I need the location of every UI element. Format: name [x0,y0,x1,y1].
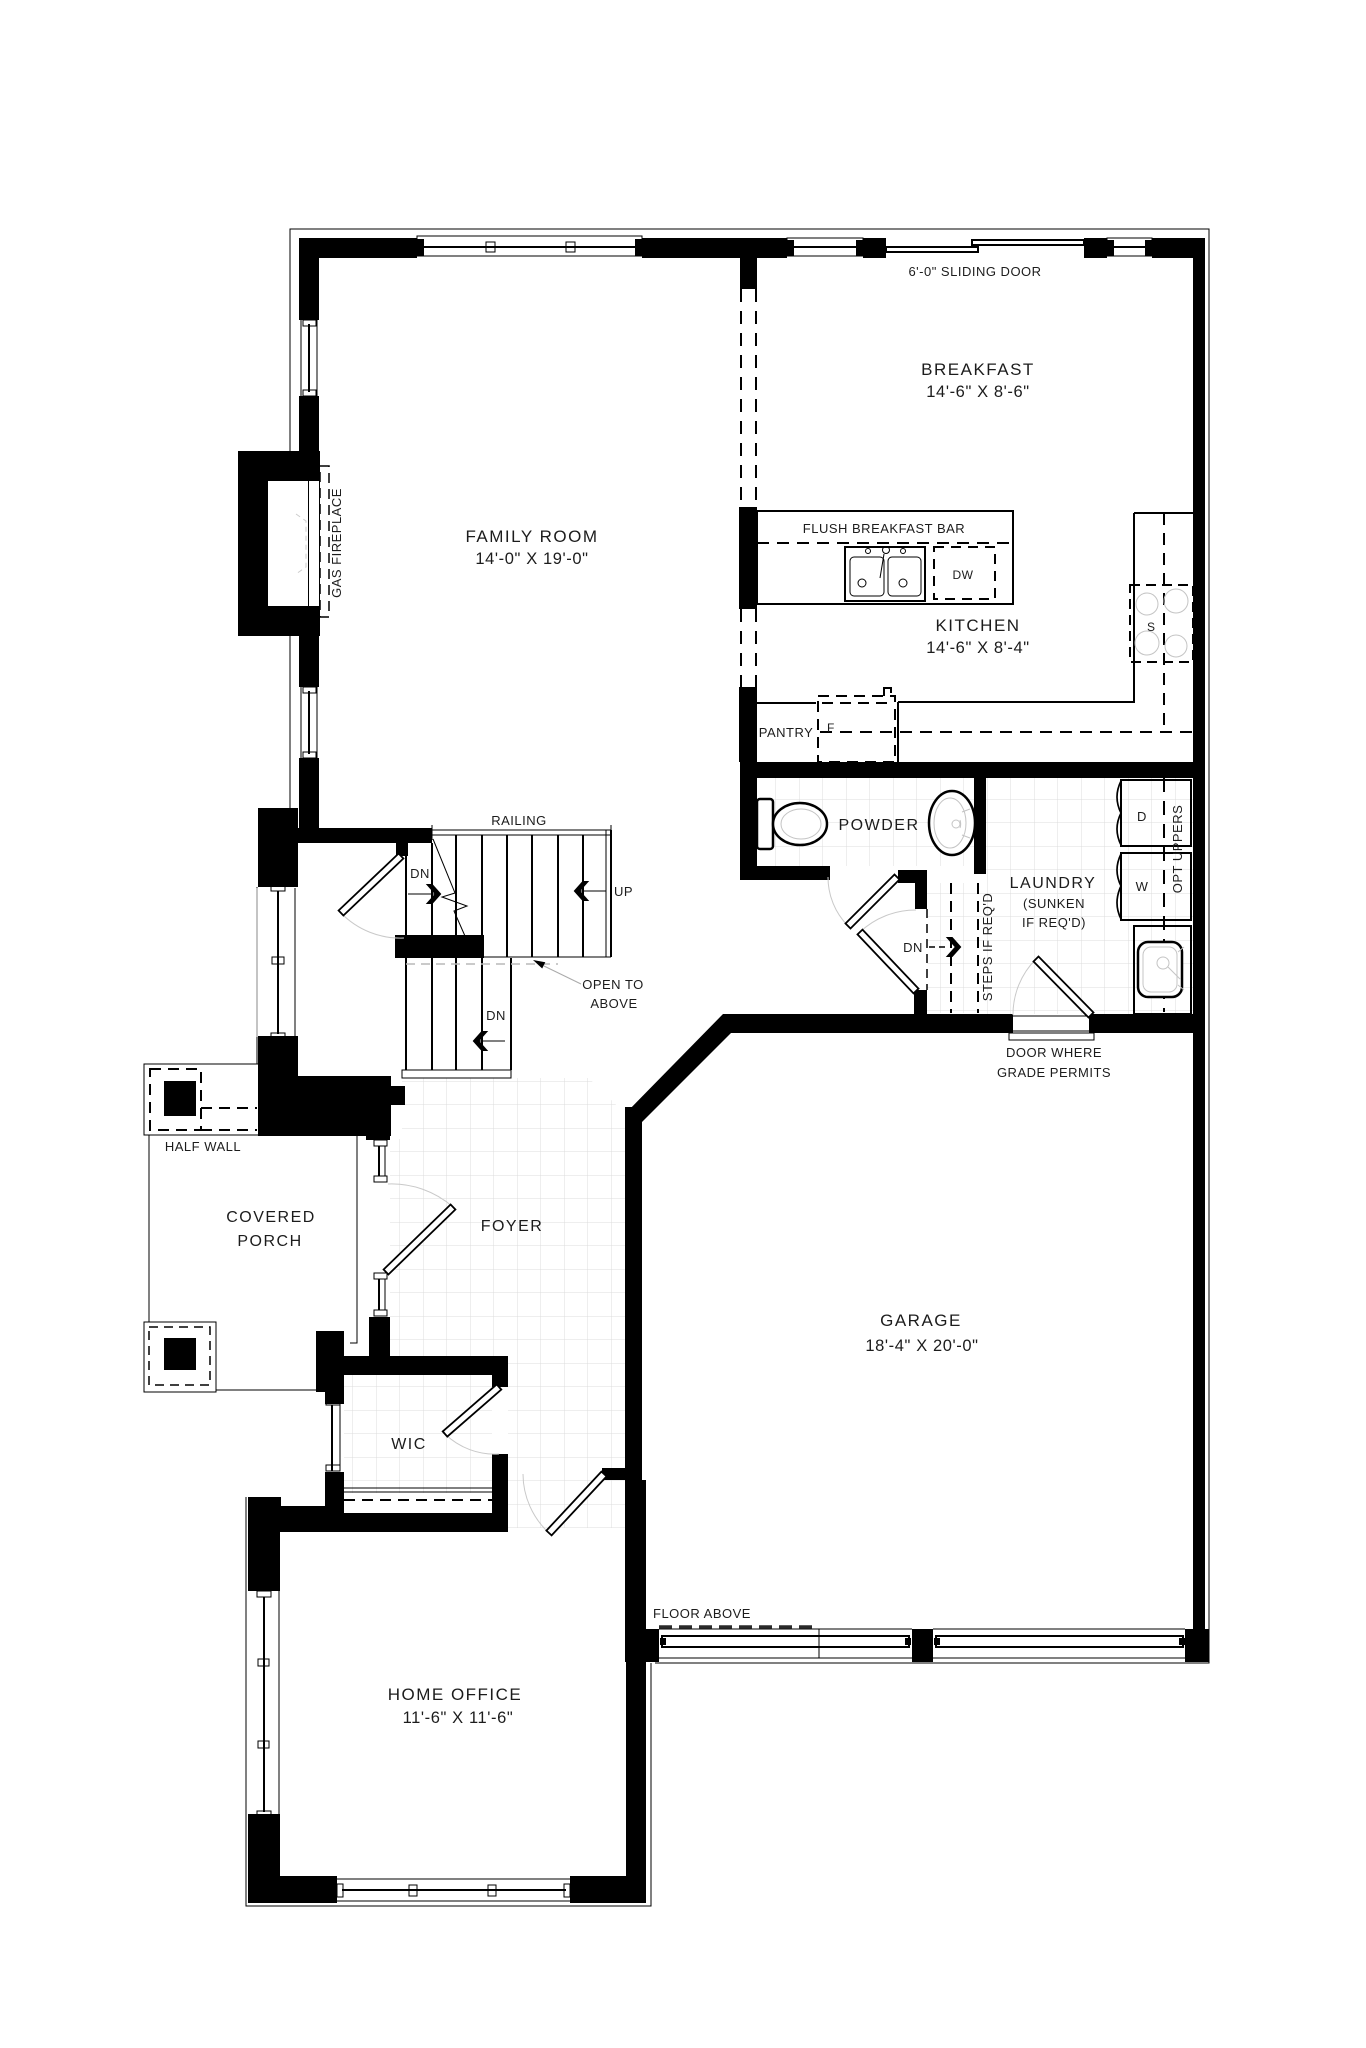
svg-text:DN: DN [903,940,923,955]
svg-text:14'-6" X 8'-6": 14'-6" X 8'-6" [926,383,1029,401]
svg-text:ABOVE: ABOVE [590,996,637,1011]
svg-text:11'-6" X 11'-6": 11'-6" X 11'-6" [403,1709,514,1727]
svg-text:WIC: WIC [391,1436,427,1453]
svg-text:S: S [1147,620,1156,634]
svg-text:GRADE PERMITS: GRADE PERMITS [997,1065,1111,1080]
svg-text:FAMILY ROOM: FAMILY ROOM [465,527,598,546]
svg-text:FLOOR ABOVE: FLOOR ABOVE [653,1606,751,1621]
svg-text:KITCHEN: KITCHEN [935,616,1020,635]
svg-text:PORCH: PORCH [237,1233,302,1250]
svg-text:IF REQ'D): IF REQ'D) [1022,915,1086,930]
svg-text:FLUSH BREAKFAST BAR: FLUSH BREAKFAST BAR [803,521,965,536]
svg-text:HOME OFFICE: HOME OFFICE [388,1685,523,1704]
svg-text:DOOR WHERE: DOOR WHERE [1006,1045,1102,1060]
svg-text:LAUNDRY: LAUNDRY [1010,875,1097,892]
svg-text:DW: DW [953,568,974,582]
svg-text:POWDER: POWDER [839,817,920,834]
svg-text:6'-0" SLIDING DOOR: 6'-0" SLIDING DOOR [908,264,1041,279]
svg-text:D: D [1137,809,1147,824]
svg-text:18'-4" X 20'-0": 18'-4" X 20'-0" [865,1337,978,1355]
svg-text:14'-0" X 19'-0": 14'-0" X 19'-0" [475,550,588,568]
svg-text:STEPS IF REQ'D: STEPS IF REQ'D [980,893,995,1001]
svg-text:(SUNKEN: (SUNKEN [1023,896,1085,911]
svg-text:DN: DN [486,1008,506,1023]
svg-text:PANTRY: PANTRY [759,725,814,740]
svg-text:OPT UPPERS: OPT UPPERS [1170,805,1185,894]
svg-text:14'-6" X 8'-4": 14'-6" X 8'-4" [926,639,1029,657]
svg-text:W: W [1136,879,1149,894]
svg-text:UP: UP [614,884,633,899]
svg-text:F: F [827,721,835,735]
svg-text:DN: DN [410,866,430,881]
svg-text:COVERED: COVERED [226,1209,316,1226]
svg-text:FOYER: FOYER [481,1218,544,1235]
svg-text:HALF WALL: HALF WALL [165,1139,241,1154]
svg-text:BREAKFAST: BREAKFAST [921,360,1035,379]
svg-text:RAILING: RAILING [491,813,547,828]
svg-text:GARAGE: GARAGE [880,1311,962,1330]
svg-text:GAS FIREPLACE: GAS FIREPLACE [329,488,344,598]
svg-text:OPEN TO: OPEN TO [582,977,644,992]
